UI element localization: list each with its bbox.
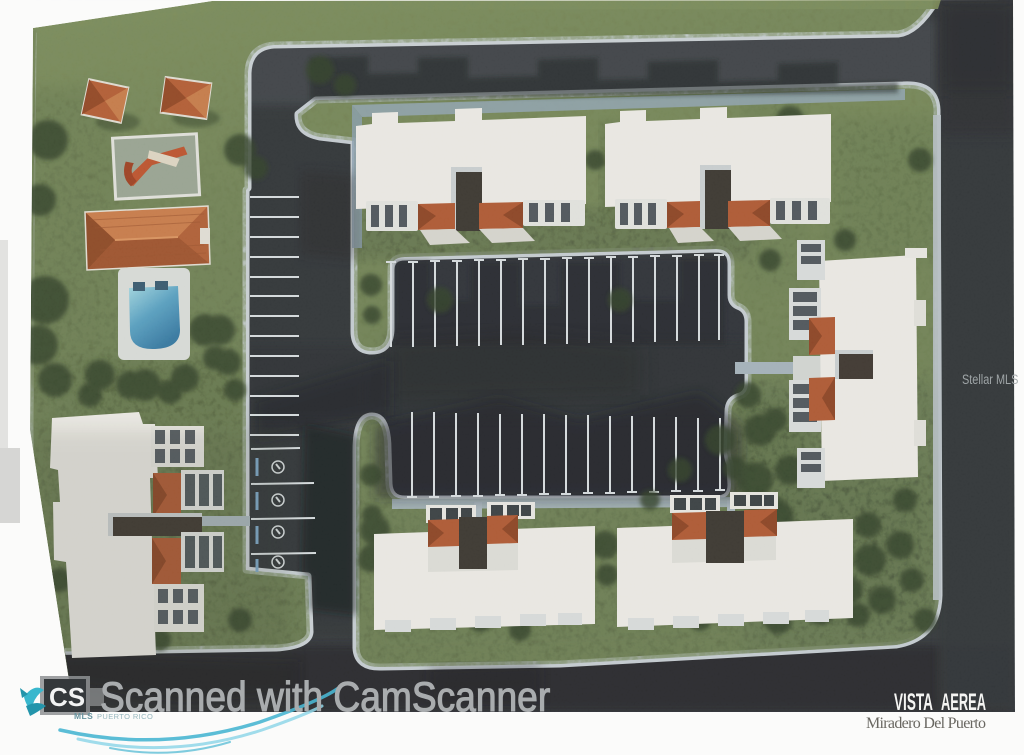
svg-text:MLS: MLS [74, 711, 93, 721]
svg-text:AEREA: AEREA [941, 690, 986, 716]
svg-text:Stellar MLS: Stellar MLS [962, 372, 1018, 388]
svg-text:Miradero Del Puerto: Miradero Del Puerto [866, 715, 986, 732]
svg-text:VISTA: VISTA [894, 689, 933, 716]
svg-text:Scanned with CamScanner: Scanned with CamScanner [100, 674, 550, 721]
svg-text:CS: CS [49, 682, 85, 712]
